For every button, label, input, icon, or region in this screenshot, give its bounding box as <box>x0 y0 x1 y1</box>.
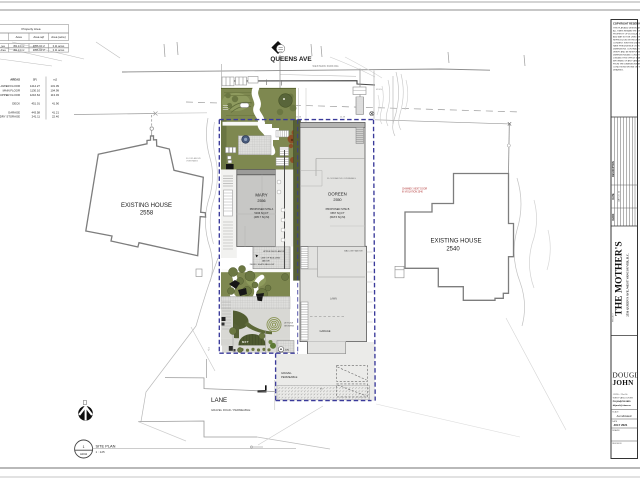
svg-text:EXISTING HOUSE: EXISTING HOUSE <box>430 239 481 245</box>
svg-text:OVERHANG: OVERHANG <box>186 160 198 163</box>
svg-text:2540: 2540 <box>446 247 460 253</box>
svg-text:AREAS: AREAS <box>10 77 20 81</box>
svg-text:As indicated: As indicated <box>617 414 632 418</box>
svg-text:PH.(604)720-5829: PH.(604)720-5829 <box>613 400 631 403</box>
svg-text:QUEENS AVE: QUEENS AVE <box>270 56 312 63</box>
svg-text:22.40: 22.40 <box>52 115 59 119</box>
svg-text:DRAWN: DRAWN <box>612 429 620 432</box>
svg-text:5336 SQ.FT: 5336 SQ.FT <box>254 211 269 215</box>
svg-text:CONDITIONS SHOWN ON THE: CONDITIONS SHOWN ON THE <box>613 67 640 69</box>
svg-text:DECK / SLATS BELLOW: DECK / SLATS BELLOW <box>250 263 275 266</box>
svg-text:24.38: 24.38 <box>340 117 346 119</box>
svg-text:GARAGE: GARAGE <box>319 329 330 333</box>
svg-text:dkjarch@shaw.ca: dkjarch@shaw.ca <box>613 405 632 407</box>
svg-text:FLOOR ABOVE OVERHANG: FLOOR ABOVE OVERHANG <box>327 177 356 180</box>
svg-text:MARY: MARY <box>255 193 267 198</box>
svg-text:DESCRIPTION: DESCRIPTION <box>613 161 615 177</box>
svg-text:SCALE: SCALE <box>612 410 619 413</box>
svg-text:DOREEN: DOREEN <box>328 192 346 197</box>
svg-text:1: 1 <box>83 445 85 449</box>
svg-text:LANE: LANE <box>211 397 227 404</box>
svg-text:UPPER FLOOR: UPPER FLOOR <box>0 93 20 97</box>
svg-text:UPPER DECK ABOVE: UPPER DECK ABOVE <box>263 250 286 253</box>
svg-text:4(R): 4(R) <box>285 349 290 351</box>
svg-text:1216.64: 1216.64 <box>30 93 41 97</box>
svg-text:JULY 27, 21: JULY 27, 21 <box>618 190 620 202</box>
svg-text:PROPOSED SITE A: PROPOSED SITE A <box>250 207 274 211</box>
svg-text:PROJECT: PROJECT <box>613 312 615 322</box>
svg-text:6657 SQ.FT: 6657 SQ.FT <box>330 211 345 215</box>
svg-text:0.11 acres: 0.11 acres <box>53 45 65 48</box>
svg-text:GROWING: GROWING <box>284 325 294 327</box>
svg-text:(618.5 SQ.M): (618.5 SQ.M) <box>330 215 346 219</box>
svg-text:SF|: SF| <box>33 77 38 81</box>
svg-text:4856.04 sf: 4856.04 sf <box>33 49 45 52</box>
svg-text:451.01: 451.01 <box>31 102 40 106</box>
svg-text:Area sqf: Area sqf <box>33 35 44 39</box>
svg-text:JOHN: JOHN <box>613 379 635 387</box>
svg-text:m2: m2 <box>53 77 57 81</box>
svg-text:ABOVE: ABOVE <box>262 260 270 263</box>
svg-text:LETTUCE: LETTUCE <box>284 323 294 325</box>
svg-text:DECK: DECK <box>12 102 20 106</box>
svg-text:(495.7 SQ.M): (495.7 SQ.M) <box>254 215 270 219</box>
svg-text:ALL TIMES REMAIN THE EXCLUSIVE: ALL TIMES REMAIN THE EXCLUSIVE <box>613 30 640 33</box>
svg-text:Area (acre): Area (acre) <box>51 35 65 39</box>
svg-text:DRY STORAGE: DRY STORAGE <box>0 115 20 119</box>
svg-text:VERIFY AND BE RESPONSIBLE FOR: VERIFY AND BE RESPONSIBLE FOR <box>613 51 640 54</box>
svg-text:EXISTING HOUSE: EXISTING HOUSE <box>121 203 172 209</box>
svg-text:AND MAY NOT BE USED OR: AND MAY NOT BE USED OR <box>613 36 640 39</box>
svg-text:A2011: A2011 <box>80 452 88 456</box>
svg-text:DIMENSIONS. CONTRACTORS SHALL: DIMENSIONS. CONTRACTORS SHALL <box>613 48 640 51</box>
svg-text:HAVE PRECEDENCE OVER SCALED: HAVE PRECEDENCE OVER SCALED <box>613 45 640 48</box>
svg-text:DIMENSIONS AND CONDITIONS ON: DIMENSIONS AND CONDITIONS ON <box>613 54 640 57</box>
svg-text:REVISION: REVISION <box>612 443 622 445</box>
svg-text:JULY 2021: JULY 2021 <box>614 423 628 427</box>
svg-text:2550: 2550 <box>333 198 341 202</box>
svg-text:COPYRIGHT RESERVED: COPYRIGHT RESERVED <box>613 22 640 26</box>
svg-text:JOB AND THIS OFFICE SHALL BE: JOB AND THIS OFFICE SHALL BE <box>613 57 640 60</box>
svg-text:THE MOTHER'S: THE MOTHER'S <box>614 241 625 315</box>
svg-text:DRAWING.: DRAWING. <box>613 69 624 72</box>
svg-text:2556 QUEEN'S AVE, WEST VANCOUV: 2556 QUEEN'S AVE, WEST VANCOUVER, B.C. <box>625 253 629 317</box>
svg-text:1 : 125: 1 : 125 <box>96 450 106 454</box>
svg-text:451.14 m²: 451.14 m² <box>13 45 24 48</box>
svg-text:LINE OF BUILDING: LINE OF BUILDING <box>261 258 281 260</box>
svg-text:SITE PLAN: SITE PLAN <box>96 444 116 449</box>
svg-text:Property Area: Property Area <box>22 27 41 31</box>
svg-text:BALCONY ABOVE: BALCONY ABOVE <box>344 249 363 252</box>
svg-text:MFT: MFT <box>242 340 249 344</box>
svg-text:PERMEABLE: PERMEABLE <box>281 375 298 379</box>
svg-text:FROM THE DIMENSIONS AND: FROM THE DIMENSIONS AND <box>613 63 640 66</box>
svg-text:2556: 2556 <box>257 199 265 203</box>
svg-text:4R 6%: 4R 6% <box>376 89 382 91</box>
svg-text:THIS PLAN AND DESIGN ARE AT: THIS PLAN AND DESIGN ARE AT <box>613 27 640 30</box>
svg-text:CHIMNEY, NEXT DOOR: CHIMNEY, NEXT DOOR <box>402 188 428 190</box>
svg-text:LAWN: LAWN <box>330 298 337 301</box>
svg-text:WEST VANCOUVER: WEST VANCOUVER <box>613 396 634 399</box>
svg-text:PROPOSED SITE B: PROPOSED SITE B <box>326 207 350 211</box>
svg-text:PROPERTY OF DOUGLAS JOHNSON: PROPERTY OF DOUGLAS JOHNSON <box>613 33 640 36</box>
svg-text:GRAVEL ROAD / PERMEABLE: GRAVEL ROAD / PERMEABLE <box>211 408 250 412</box>
svg-text:451.14 m²: 451.14 m² <box>13 49 24 52</box>
svg-text:CONSENT. WRITTEN DIMENSIONS: CONSENT. WRITTEN DIMENSIONS <box>613 43 640 45</box>
svg-text:4856.04 sf: 4856.04 sf <box>33 45 45 48</box>
svg-text:IN VIOLATION 2540: IN VIOLATION 2540 <box>402 190 423 193</box>
svg-text:INFORMED OF ANY VARIATIONS: INFORMED OF ANY VARIATIONS <box>613 60 640 63</box>
svg-text:2558: 2558 <box>140 211 154 217</box>
svg-text:GRAVEL: GRAVEL <box>281 371 292 375</box>
svg-text:DATE: DATE <box>612 193 615 200</box>
svg-text:Area: Area <box>0 49 6 52</box>
svg-text:Area: Area <box>16 35 22 39</box>
svg-text:FLOOR ABOVE: FLOOR ABOVE <box>186 157 201 160</box>
svg-text:41.90: 41.90 <box>52 102 59 106</box>
svg-text:113.03: 113.03 <box>51 93 60 97</box>
svg-text:WESTERN PARKING: WESTERN PARKING <box>313 65 339 68</box>
svg-text:0.11 acres: 0.11 acres <box>53 49 65 52</box>
svg-text:24.38: 24.38 <box>296 117 302 119</box>
svg-text:#1355 - 21st St: #1355 - 21st St <box>613 393 628 396</box>
svg-text:MARK: MARK <box>612 213 615 220</box>
svg-text:241.11: 241.11 <box>32 115 41 119</box>
svg-text:REPRODUCED WITHOUT WRITTEN: REPRODUCED WITHOUT WRITTEN <box>613 40 640 42</box>
